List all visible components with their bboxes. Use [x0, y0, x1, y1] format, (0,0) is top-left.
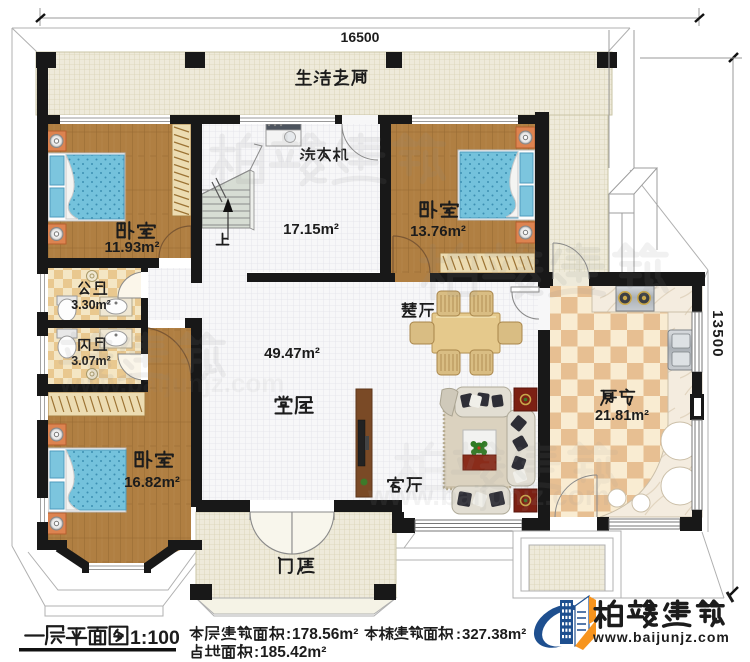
svg-text:185.42m²: 185.42m² [260, 644, 326, 661]
svg-text:www.baijunjz.com: www.baijunjz.com [59, 368, 284, 398]
svg-text:13500: 13500 [709, 310, 726, 358]
svg-text::: : [456, 626, 461, 643]
svg-text:21.81m²: 21.81m² [595, 408, 649, 424]
svg-text:3.30m²: 3.30m² [71, 298, 111, 312]
svg-text:178.56m²: 178.56m² [292, 626, 358, 643]
svg-text:www.baijunjz.com: www.baijunjz.com [592, 629, 730, 645]
svg-text:49.47m²: 49.47m² [264, 345, 320, 362]
svg-text:16500: 16500 [341, 29, 380, 45]
svg-text:16.82m²: 16.82m² [124, 474, 180, 491]
svg-text:327.38m²: 327.38m² [462, 626, 526, 643]
svg-text:17.15m²: 17.15m² [283, 221, 339, 238]
svg-text::: : [254, 644, 259, 661]
svg-text:11.93m²: 11.93m² [104, 239, 159, 256]
svg-text:13.76m²: 13.76m² [410, 223, 466, 240]
svg-text::: : [286, 626, 291, 643]
svg-text:1:100: 1:100 [130, 627, 180, 649]
